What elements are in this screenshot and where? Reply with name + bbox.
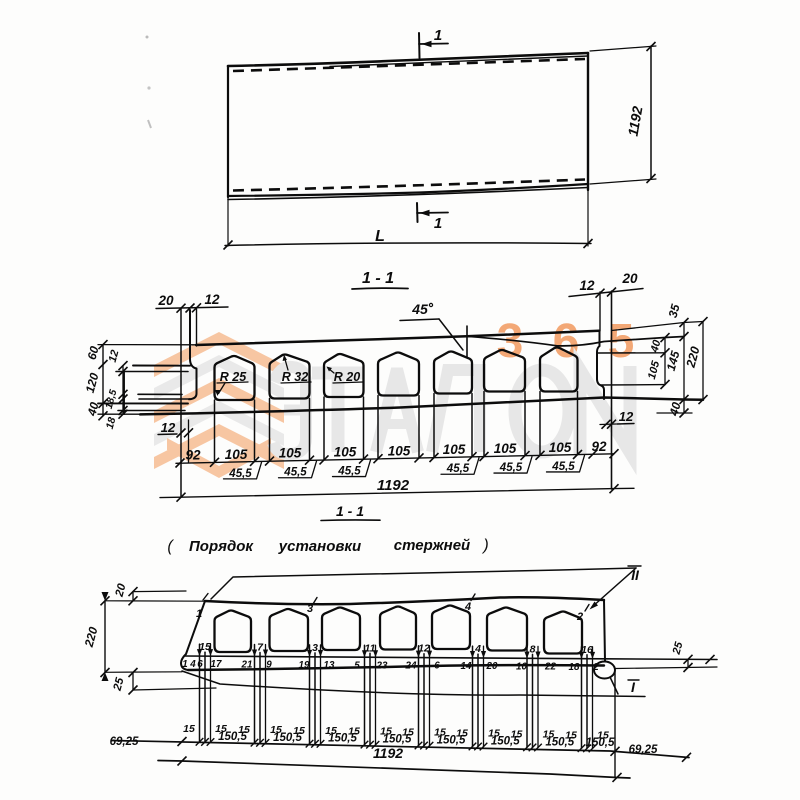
svg-text:69,25: 69,25 — [629, 744, 658, 756]
svg-text:1: 1 — [434, 27, 442, 44]
svg-text:105: 105 — [334, 444, 357, 459]
svg-text:150,5: 150,5 — [545, 736, 574, 748]
svg-text:11: 11 — [365, 642, 376, 654]
svg-text:2: 2 — [576, 611, 583, 623]
svg-text:5: 5 — [354, 660, 360, 671]
svg-text:3: 3 — [312, 642, 318, 654]
svg-text:45,5: 45,5 — [228, 468, 252, 480]
svg-text:45,5: 45,5 — [337, 466, 361, 478]
svg-text:105: 105 — [388, 443, 411, 458]
svg-text:45,5: 45,5 — [283, 467, 307, 479]
svg-text:105: 105 — [494, 441, 517, 456]
svg-text:12: 12 — [619, 409, 634, 424]
svg-text:4: 4 — [464, 601, 471, 613]
svg-text:1 - 1: 1 - 1 — [336, 503, 364, 519]
svg-text:18: 18 — [569, 662, 580, 673]
svg-text:15: 15 — [199, 641, 211, 653]
svg-text:150,5: 150,5 — [383, 734, 412, 746]
svg-text:105: 105 — [225, 447, 248, 462]
svg-text:1192: 1192 — [373, 745, 403, 761]
svg-text:1192: 1192 — [377, 477, 410, 494]
svg-text:12: 12 — [161, 420, 176, 435]
svg-text:6: 6 — [197, 659, 203, 670]
svg-text:10: 10 — [516, 661, 527, 672]
svg-text:105: 105 — [279, 446, 302, 461]
svg-text:105: 105 — [443, 442, 466, 457]
svg-text:19: 19 — [299, 660, 310, 671]
svg-text:45,5: 45,5 — [499, 462, 523, 474]
svg-text:15: 15 — [183, 723, 195, 735]
svg-text:20: 20 — [157, 293, 174, 308]
svg-text:12: 12 — [204, 292, 220, 307]
svg-text:4: 4 — [474, 643, 481, 655]
svg-text:92: 92 — [185, 448, 201, 463]
svg-text:8: 8 — [530, 643, 536, 655]
svg-text:45,5: 45,5 — [551, 461, 575, 473]
svg-text:45: 45 — [411, 301, 428, 317]
svg-text:24: 24 — [405, 661, 417, 672]
svg-text:12: 12 — [579, 278, 595, 293]
svg-text:3: 3 — [307, 603, 313, 615]
svg-text:1 - 1: 1 - 1 — [362, 270, 394, 287]
svg-text:150,5: 150,5 — [437, 735, 466, 747]
svg-text:20: 20 — [621, 271, 638, 286]
svg-text:150,5: 150,5 — [491, 735, 520, 747]
svg-text:2: 2 — [592, 662, 599, 673]
svg-text:69,25: 69,25 — [110, 736, 139, 748]
svg-text:стержней: стержней — [394, 537, 470, 554]
svg-text:установки: установки — [278, 538, 361, 555]
svg-text:9: 9 — [266, 660, 272, 671]
svg-text:1: 1 — [434, 215, 442, 232]
svg-text:13: 13 — [324, 660, 335, 671]
svg-text:17: 17 — [211, 659, 222, 670]
svg-text:92: 92 — [591, 439, 607, 454]
svg-text:20: 20 — [486, 661, 498, 672]
svg-text:1: 1 — [182, 659, 187, 670]
svg-text:12: 12 — [418, 643, 430, 655]
svg-text:II: II — [631, 567, 640, 583]
svg-text:21: 21 — [241, 660, 253, 671]
svg-text:22: 22 — [544, 661, 556, 672]
svg-text:4: 4 — [189, 659, 196, 670]
svg-text:Порядок: Порядок — [189, 538, 254, 555]
svg-text:105: 105 — [549, 440, 572, 455]
svg-text:150,5: 150,5 — [328, 733, 357, 745]
svg-text:1: 1 — [196, 608, 202, 620]
svg-text:16: 16 — [581, 644, 593, 656]
svg-text:150,5: 150,5 — [273, 732, 302, 744]
svg-text:L: L — [375, 228, 385, 245]
svg-text:45,5: 45,5 — [446, 463, 470, 475]
svg-text:6: 6 — [434, 661, 440, 672]
svg-text:): ) — [481, 537, 488, 554]
svg-text:150,5: 150,5 — [586, 737, 615, 749]
svg-text:150,5: 150,5 — [218, 731, 247, 743]
svg-text:14: 14 — [461, 661, 472, 672]
svg-text:23: 23 — [376, 660, 388, 671]
